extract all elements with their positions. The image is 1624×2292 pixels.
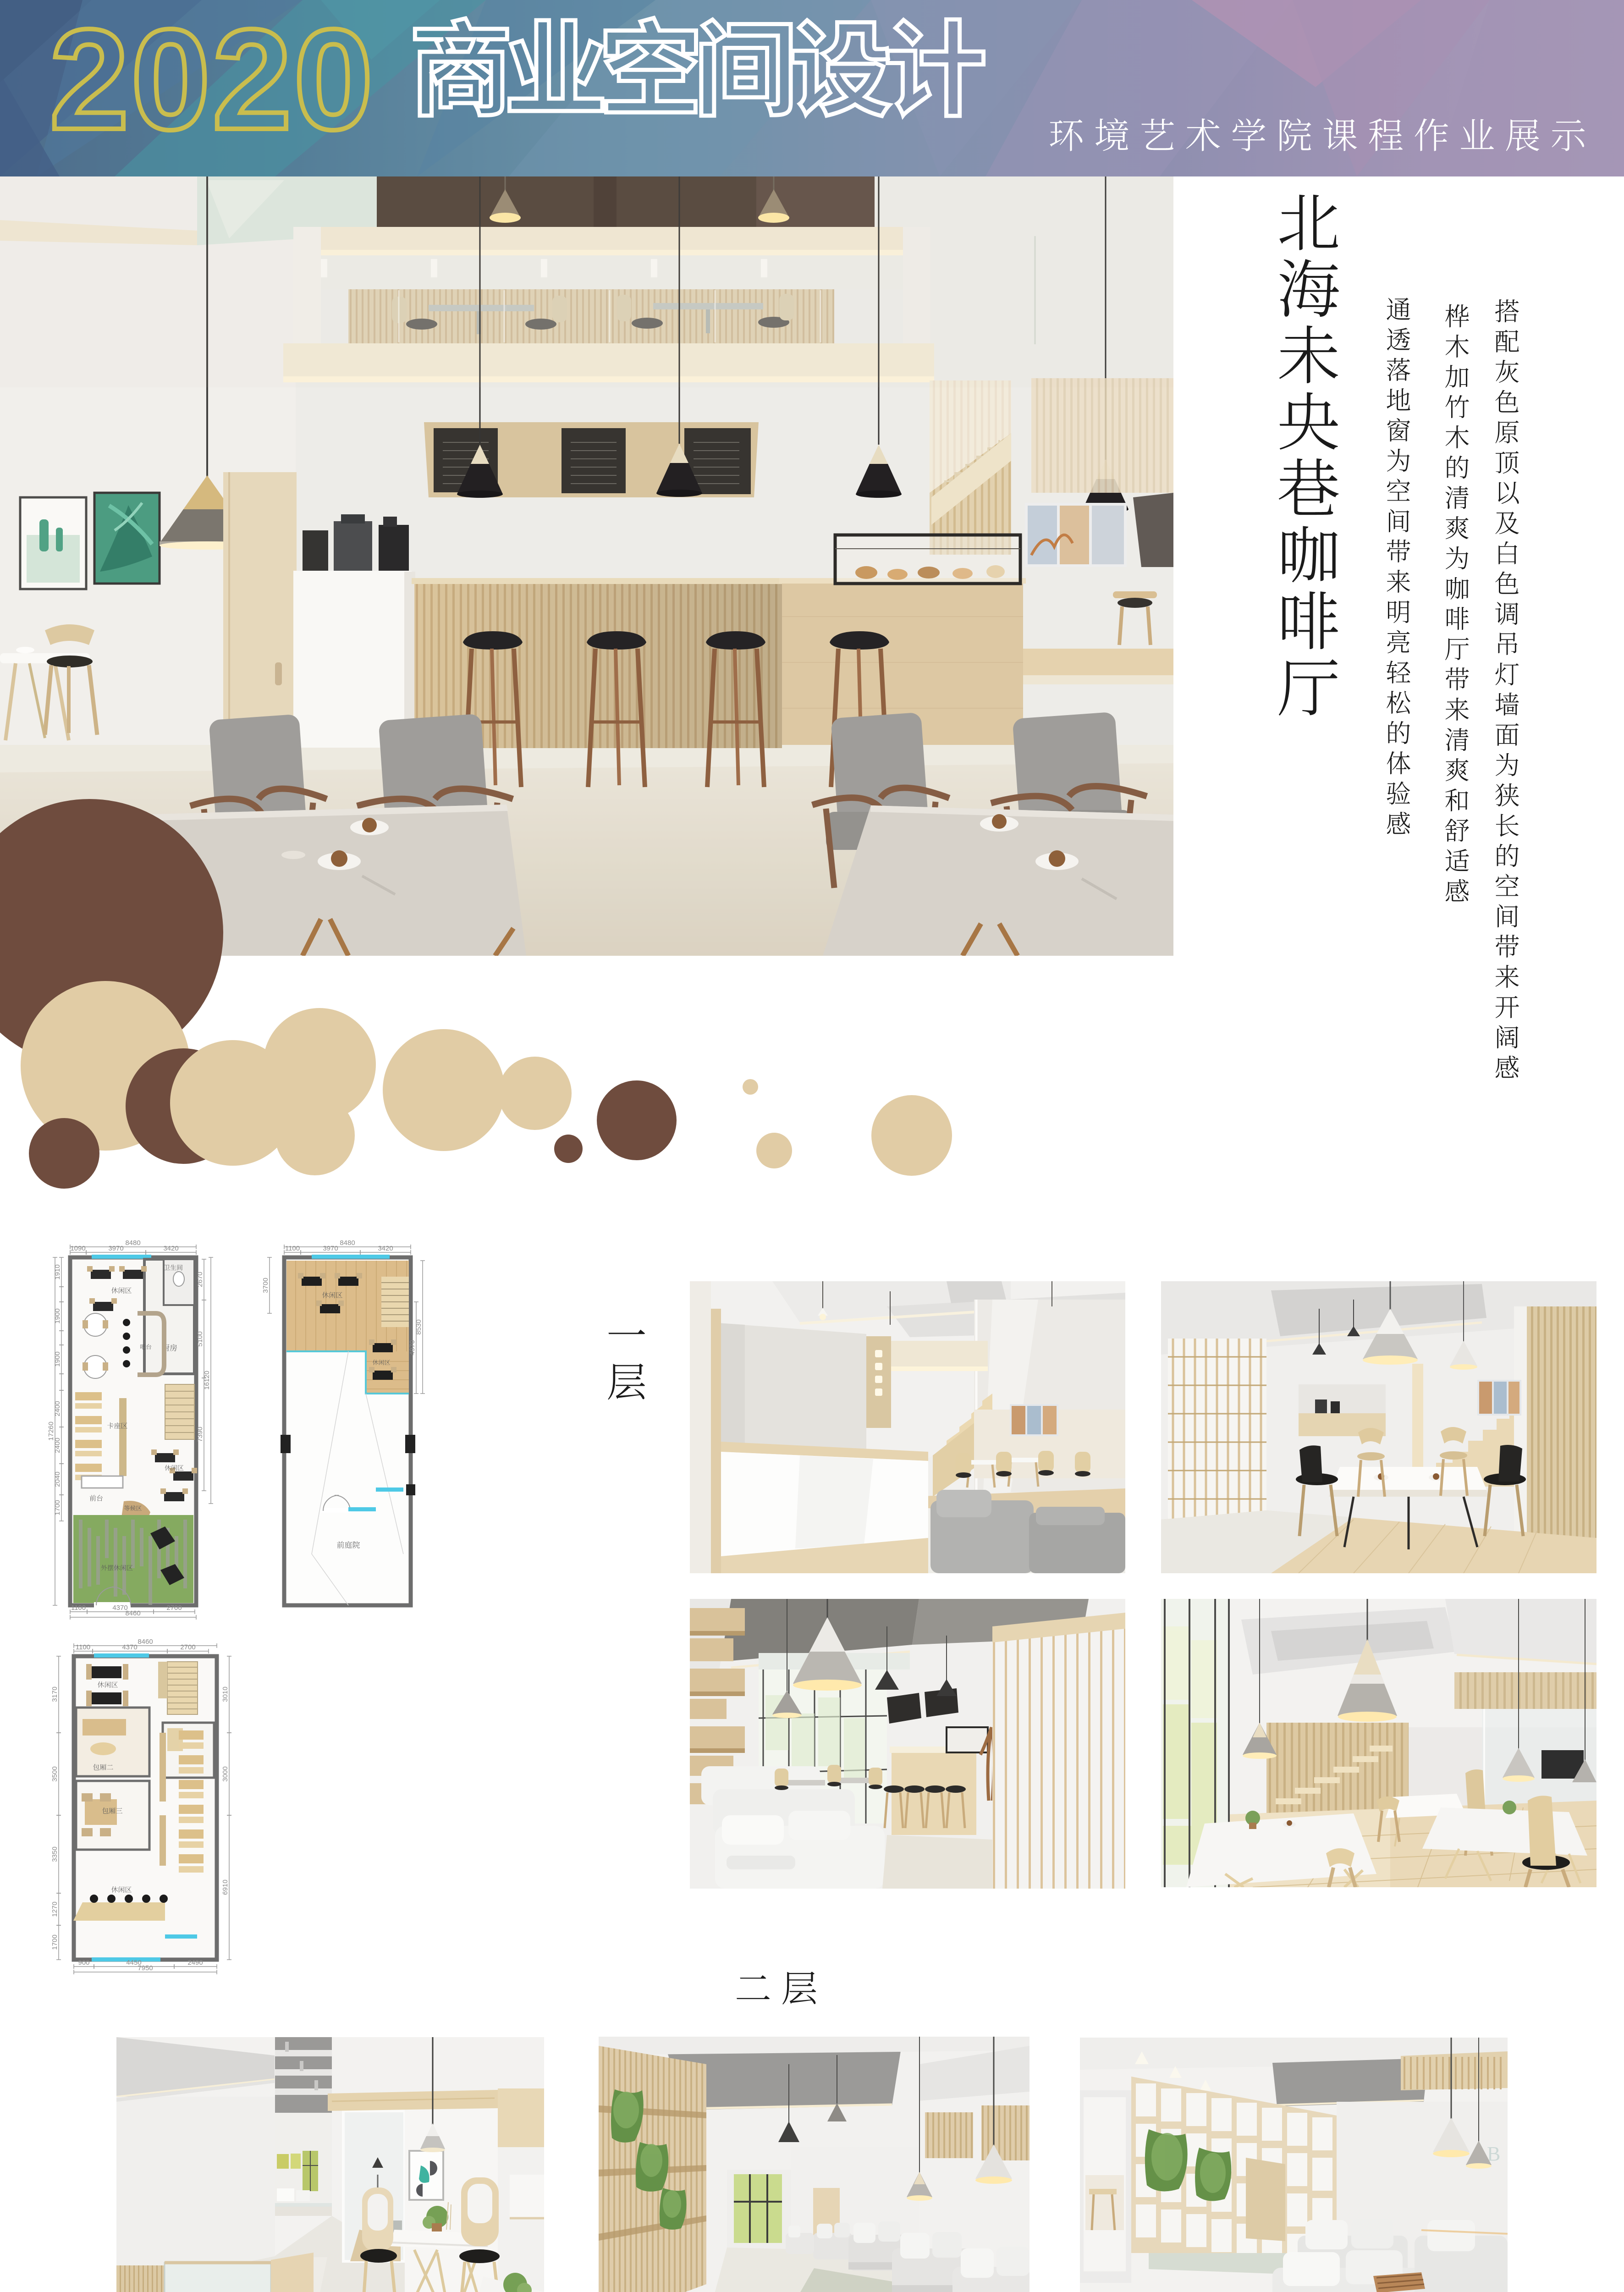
- svg-text:2040: 2040: [54, 1471, 61, 1487]
- svg-text:4370: 4370: [122, 1643, 137, 1651]
- svg-text:3500: 3500: [51, 1766, 59, 1781]
- svg-text:2700: 2700: [180, 1643, 195, 1651]
- svg-text:1900: 1900: [54, 1308, 61, 1323]
- svg-text:1700: 1700: [51, 1934, 59, 1950]
- svg-text:4970: 4970: [408, 1340, 416, 1355]
- svg-text:2700: 2700: [166, 1604, 182, 1612]
- svg-text:2020: 2020: [50, 0, 375, 160]
- svg-text:1910: 1910: [54, 1264, 61, 1279]
- svg-text:1270: 1270: [51, 1901, 59, 1917]
- svg-text:1900: 1900: [54, 1351, 61, 1366]
- svg-text:1100: 1100: [285, 1245, 300, 1252]
- svg-text:1090: 1090: [70, 1245, 85, 1252]
- svg-text:2490: 2490: [187, 1959, 203, 1967]
- svg-text:900: 900: [78, 1959, 89, 1967]
- svg-text:7390: 7390: [196, 1427, 204, 1442]
- svg-text:2400: 2400: [54, 1438, 61, 1453]
- svg-text:3170: 3170: [51, 1686, 59, 1702]
- svg-text:6910: 6910: [221, 1879, 229, 1895]
- svg-text:3970: 3970: [323, 1245, 338, 1252]
- svg-text:2670: 2670: [196, 1272, 204, 1287]
- svg-text:2400: 2400: [54, 1401, 61, 1416]
- svg-text:4450: 4450: [126, 1959, 141, 1967]
- svg-text:8480: 8480: [125, 1239, 140, 1247]
- svg-text:4370: 4370: [112, 1604, 127, 1612]
- svg-text:3350: 3350: [51, 1846, 59, 1862]
- svg-text:1100: 1100: [76, 1643, 90, 1651]
- svg-text:3420: 3420: [163, 1245, 178, 1252]
- svg-text:8480: 8480: [340, 1239, 355, 1247]
- svg-text:3970: 3970: [108, 1245, 123, 1252]
- svg-text:3010: 3010: [221, 1686, 229, 1702]
- svg-text:1100: 1100: [71, 1604, 86, 1612]
- svg-text:3000: 3000: [221, 1766, 229, 1781]
- svg-text:3700: 3700: [262, 1278, 270, 1293]
- svg-text:8460: 8460: [138, 1638, 153, 1646]
- svg-text:5100: 5100: [196, 1331, 204, 1346]
- svg-text:1700: 1700: [54, 1500, 61, 1515]
- svg-text:16120: 16120: [203, 1371, 211, 1390]
- svg-text:3420: 3420: [378, 1245, 393, 1252]
